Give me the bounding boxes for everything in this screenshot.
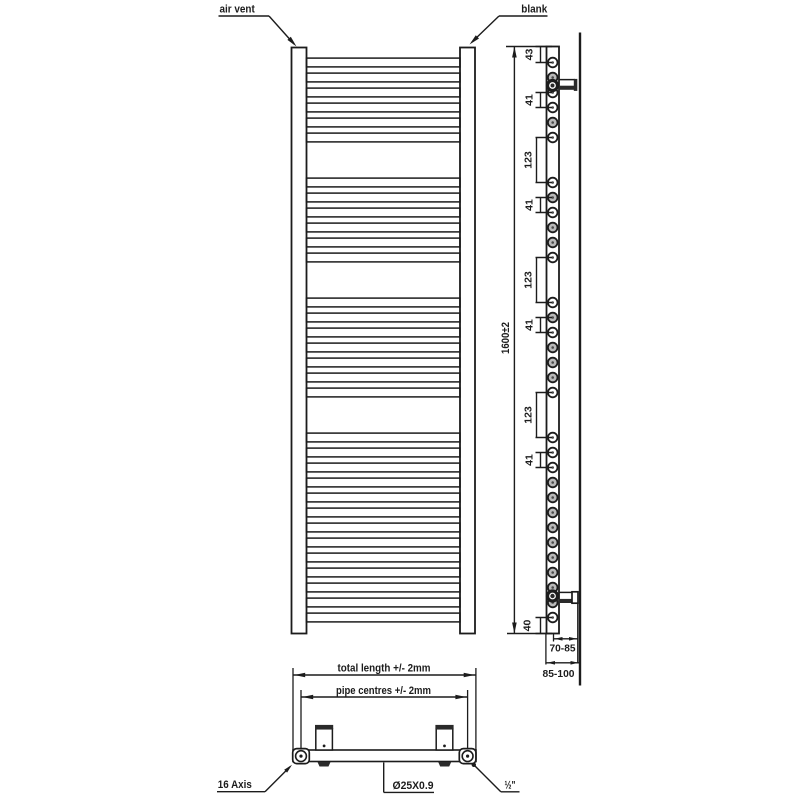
svg-text:43: 43 bbox=[523, 49, 535, 61]
svg-text:123: 123 bbox=[522, 406, 534, 424]
svg-text:total length +/- 2mm: total length +/- 2mm bbox=[338, 663, 431, 675]
svg-text:123: 123 bbox=[522, 271, 534, 289]
svg-text:1600±2: 1600±2 bbox=[500, 322, 512, 354]
svg-text:40: 40 bbox=[521, 620, 533, 632]
svg-text:70-85: 70-85 bbox=[550, 643, 576, 655]
svg-text:16 Axis: 16 Axis bbox=[218, 779, 252, 791]
svg-text:air vent: air vent bbox=[220, 4, 256, 16]
svg-text:123: 123 bbox=[522, 151, 534, 169]
svg-text:41: 41 bbox=[523, 454, 535, 466]
svg-text:Ø25X0.9: Ø25X0.9 bbox=[393, 780, 434, 792]
svg-text:pipe centres +/- 2mm: pipe centres +/- 2mm bbox=[336, 685, 431, 697]
svg-text:blank: blank bbox=[521, 4, 548, 16]
svg-text:41: 41 bbox=[523, 319, 535, 331]
svg-text:½": ½" bbox=[505, 780, 516, 792]
svg-text:41: 41 bbox=[523, 199, 535, 211]
svg-text:41: 41 bbox=[523, 94, 535, 106]
svg-text:85-100: 85-100 bbox=[543, 668, 575, 680]
